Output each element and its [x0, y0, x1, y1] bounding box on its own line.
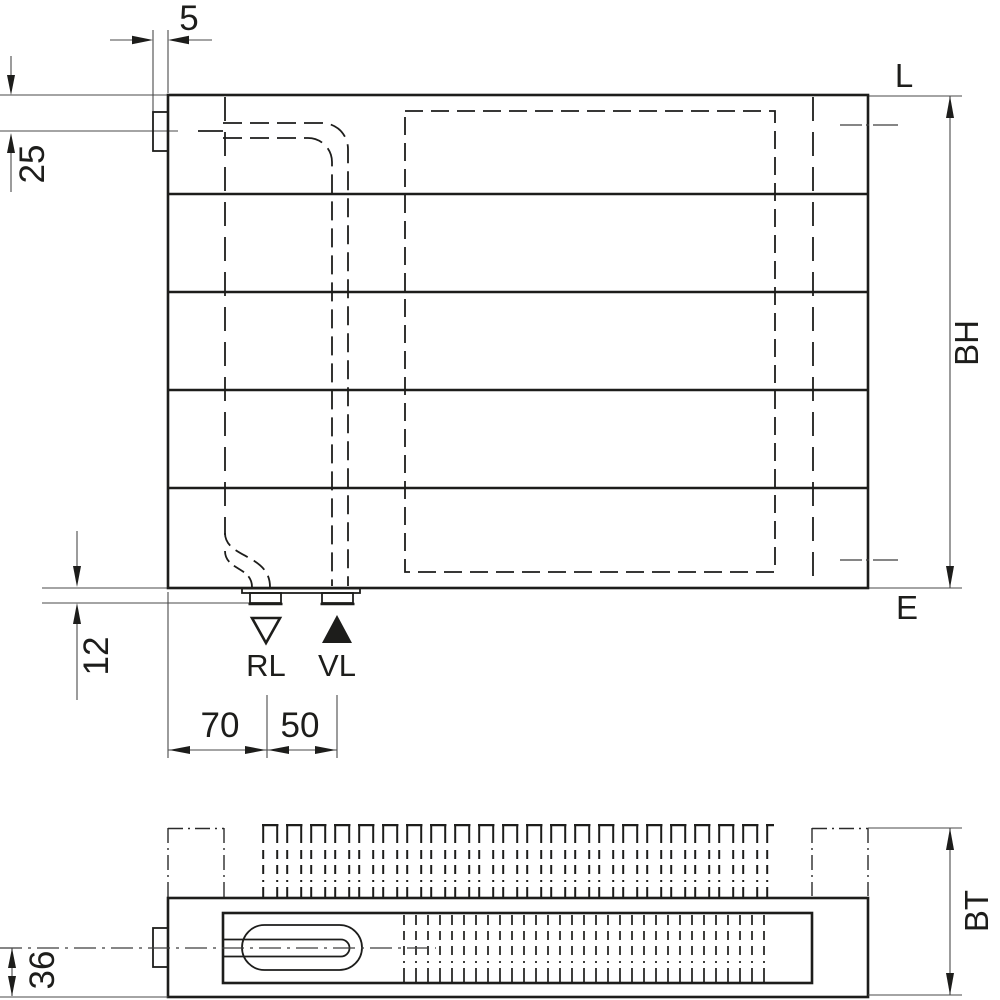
dim-label-5: 5: [179, 0, 198, 38]
label-return: RL: [246, 648, 286, 683]
dim-label-36: 36: [23, 951, 62, 990]
label-drain: E: [896, 589, 918, 626]
convector-fins-inner: [403, 915, 773, 982]
dim-label-70: 70: [201, 706, 240, 745]
dim-label-25: 25: [13, 145, 52, 184]
dim-label-50: 50: [281, 706, 320, 745]
label-air-vent: L: [895, 57, 913, 94]
convector-fins-top: [262, 824, 774, 898]
label-supply: VL: [318, 648, 356, 683]
dim-label-12: 12: [77, 637, 116, 676]
dim-label-bh: BH: [948, 320, 985, 366]
technical-drawing-page: 5 25 12 70 50 L E BH RL VL: [0, 0, 1000, 1000]
dim-label-bt: BT: [958, 890, 995, 932]
radiator-technical-drawing: 5 25 12 70 50 L E BH RL VL: [0, 0, 1000, 1000]
